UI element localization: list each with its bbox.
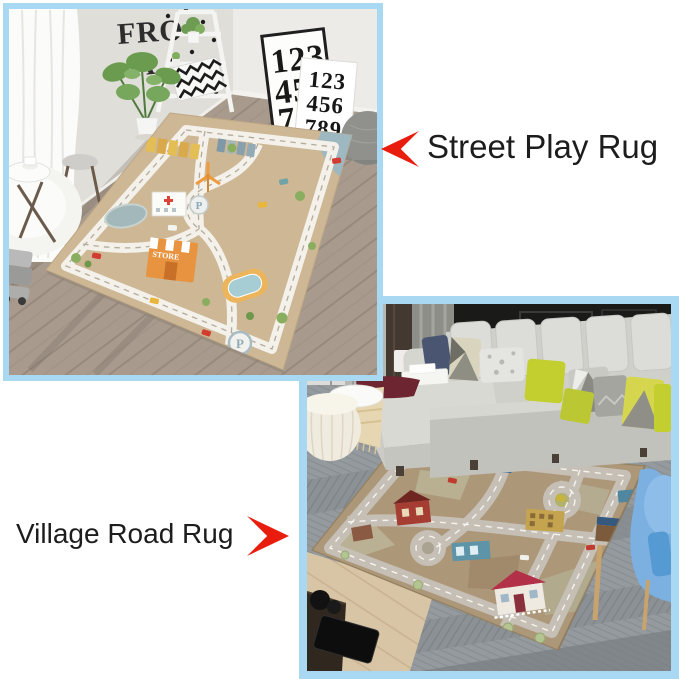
- yellow-pillow: [559, 388, 594, 425]
- rug-hospital: [152, 192, 186, 216]
- geometric-pillow: [449, 337, 482, 381]
- coffee-cup: [24, 157, 36, 165]
- rug-helipad: P: [190, 196, 208, 214]
- street-rug-photo: FRO A: [3, 3, 383, 381]
- chartreuse-pillow: [524, 358, 566, 403]
- rug-store: STORE: [146, 237, 199, 283]
- village-rug-caption: Village Road Rug: [16, 519, 233, 550]
- damask-pillow: [479, 347, 525, 383]
- arrow-right-icon: [247, 516, 289, 556]
- street-room-scene: FRO A: [9, 9, 377, 375]
- parking-letter: P: [236, 336, 244, 351]
- arrow-left-icon: [381, 131, 419, 167]
- street-rug-caption: Street Play Rug: [427, 129, 658, 165]
- helipad-letter: P: [196, 200, 203, 212]
- product-collage: FRO A: [0, 0, 679, 679]
